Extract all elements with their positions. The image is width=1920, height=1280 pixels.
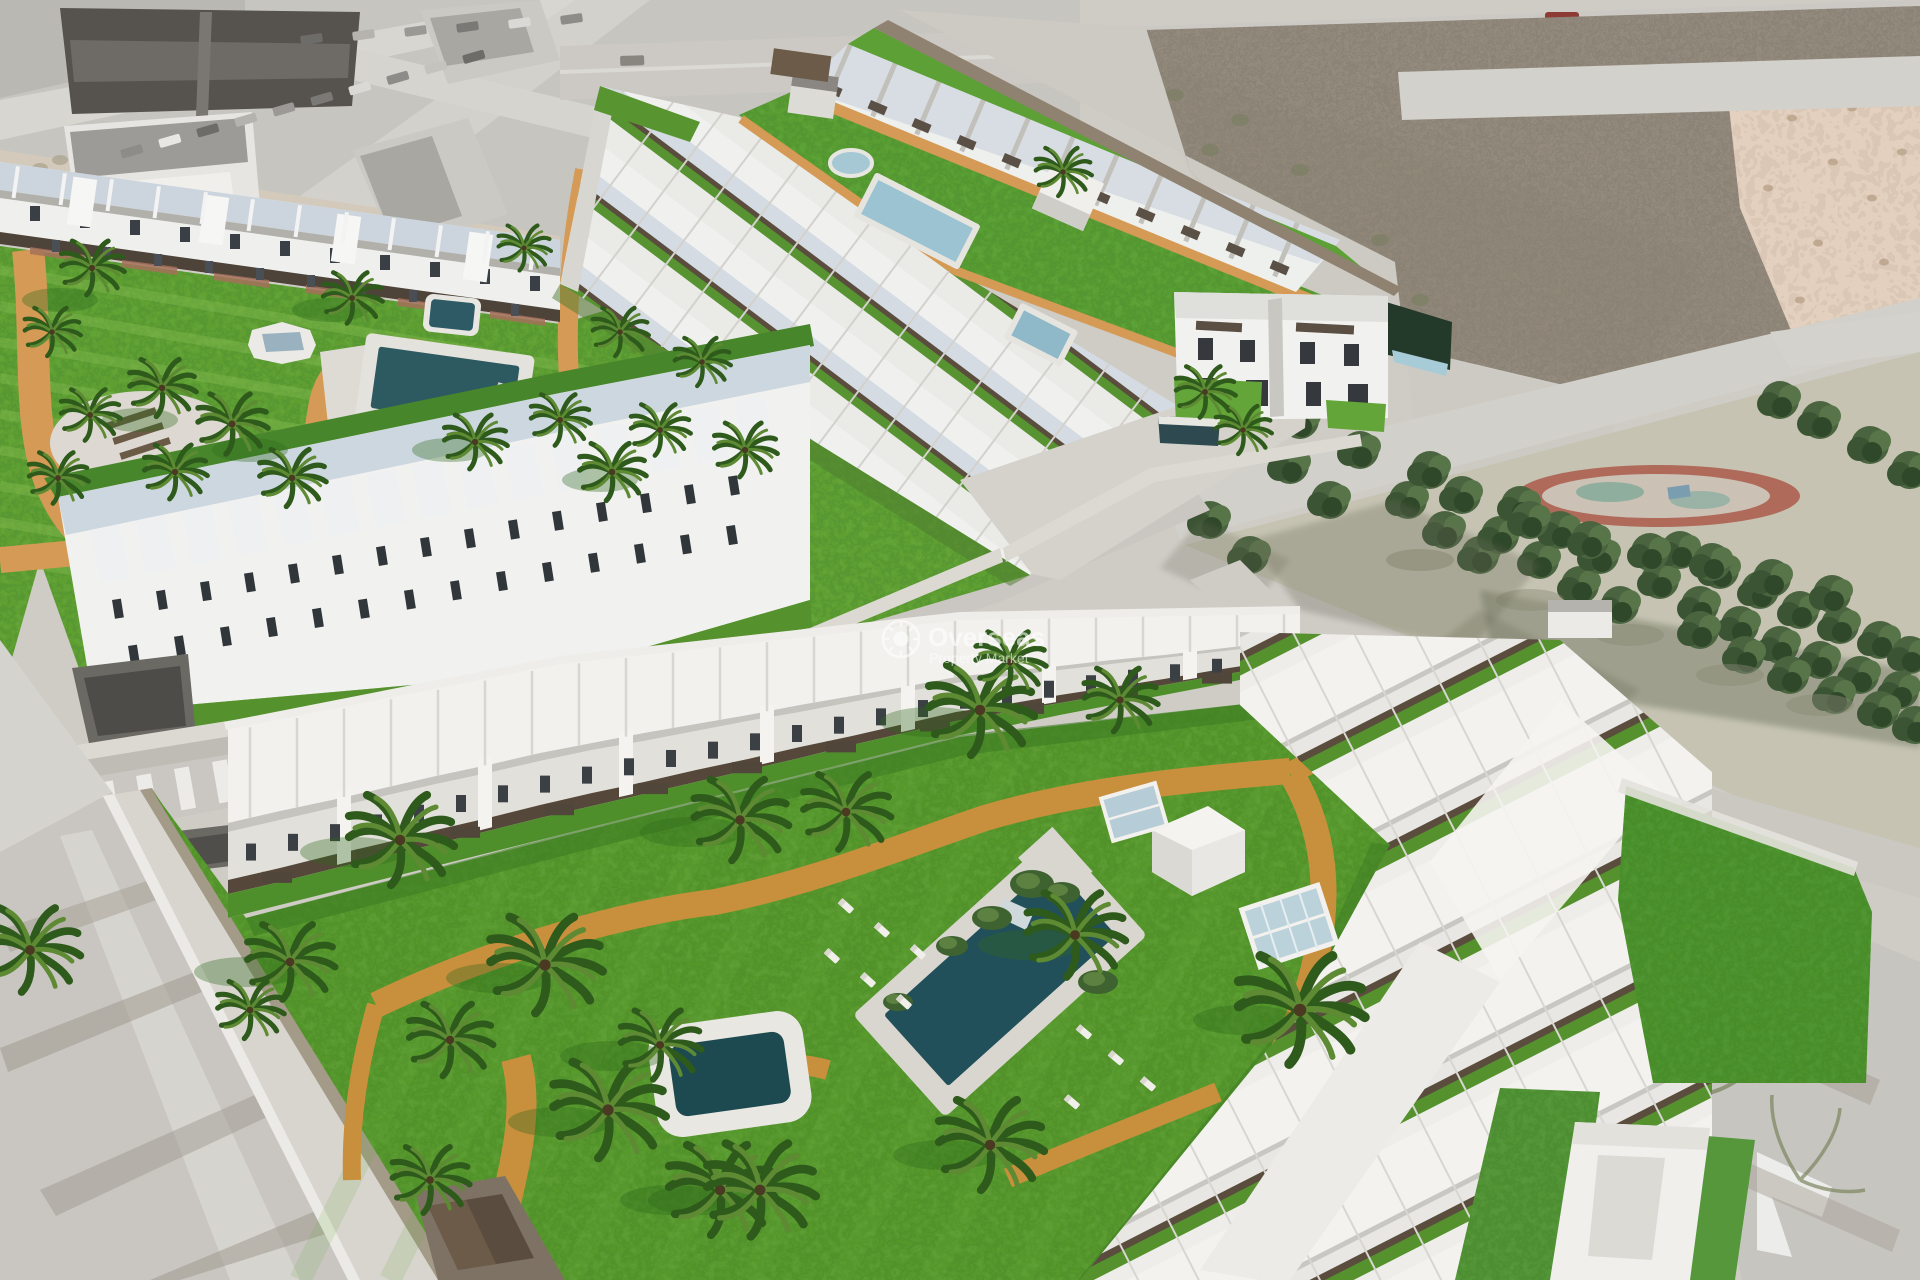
svg-text:Property Market: Property Market xyxy=(929,650,1029,666)
svg-text:Overseas: Overseas xyxy=(928,622,1045,652)
